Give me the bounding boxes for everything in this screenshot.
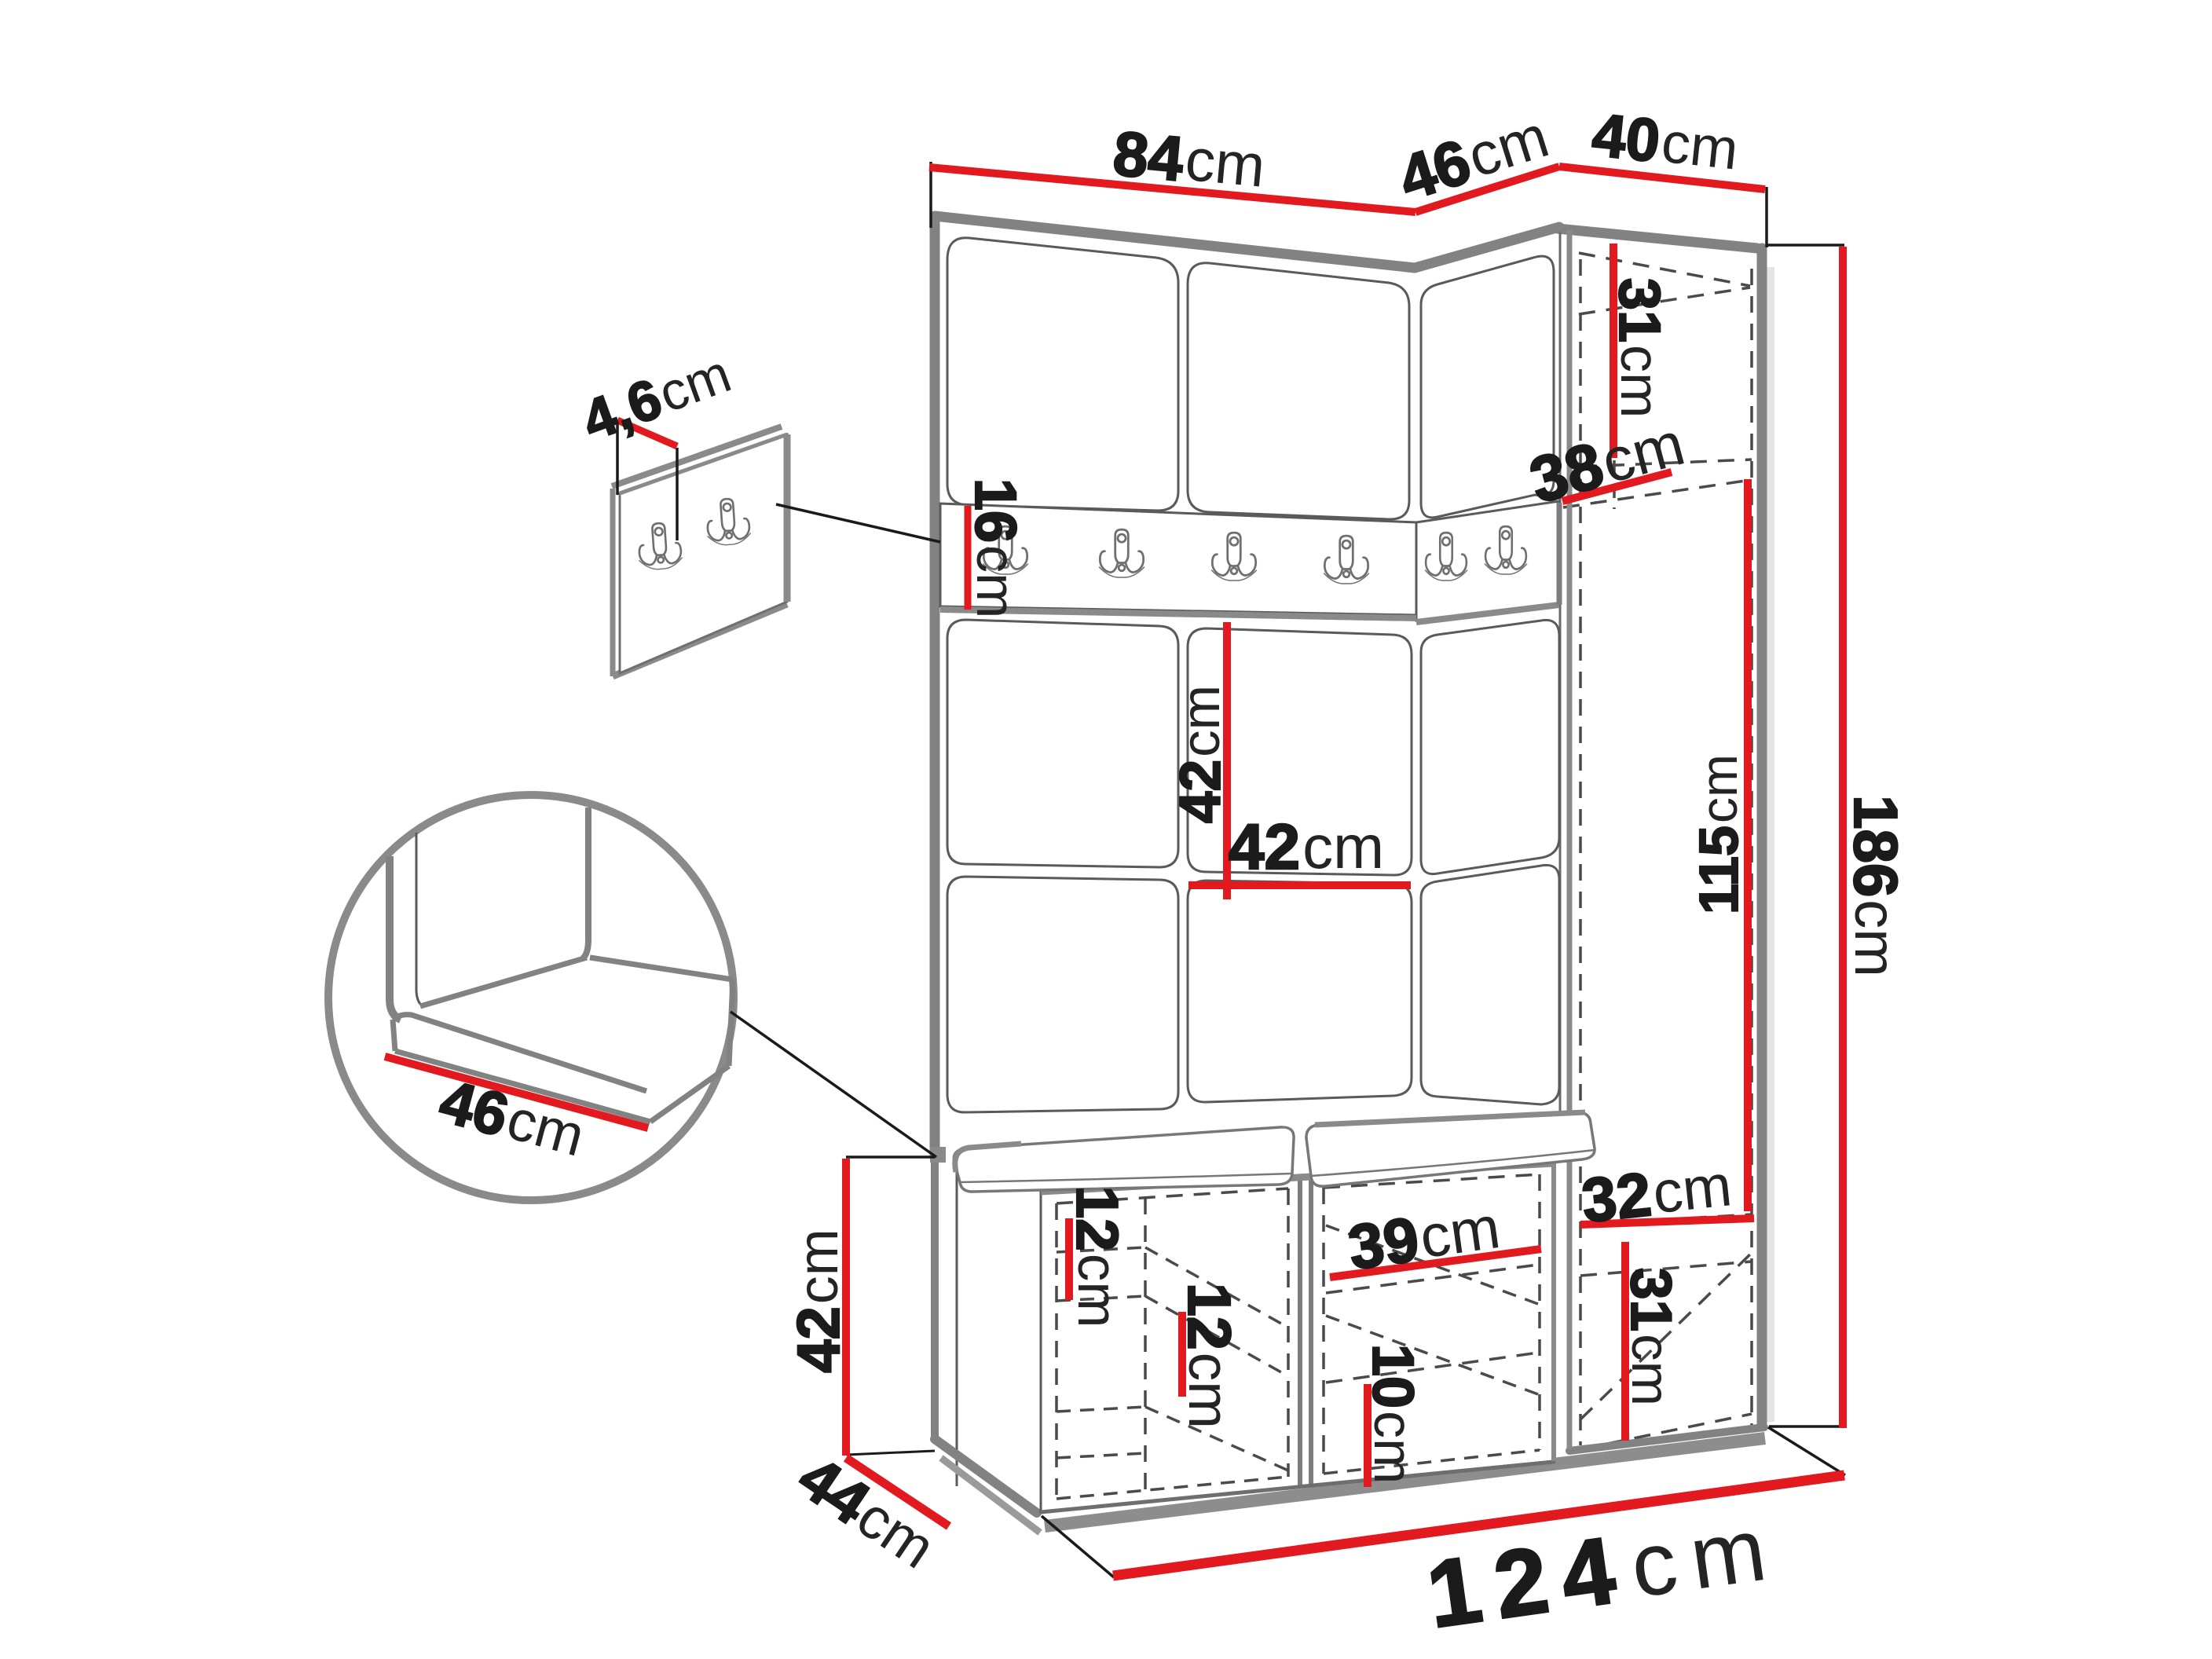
svg-text:42cm: 42cm [1169,685,1232,823]
svg-text:10cm: 10cm [1361,1344,1426,1485]
svg-text:42cm: 42cm [786,1229,852,1373]
svg-text:115cm: 115cm [1688,754,1749,914]
svg-text:186cm: 186cm [1841,795,1910,977]
svg-text:16cm: 16cm [964,478,1029,619]
svg-text:31cm: 31cm [1608,278,1673,419]
svg-text:12cm: 12cm [1175,1283,1243,1429]
svg-text:12cm: 12cm [1064,1185,1130,1328]
svg-text:31cm: 31cm [1620,1268,1683,1406]
svg-text:42cm: 42cm [1229,811,1384,883]
